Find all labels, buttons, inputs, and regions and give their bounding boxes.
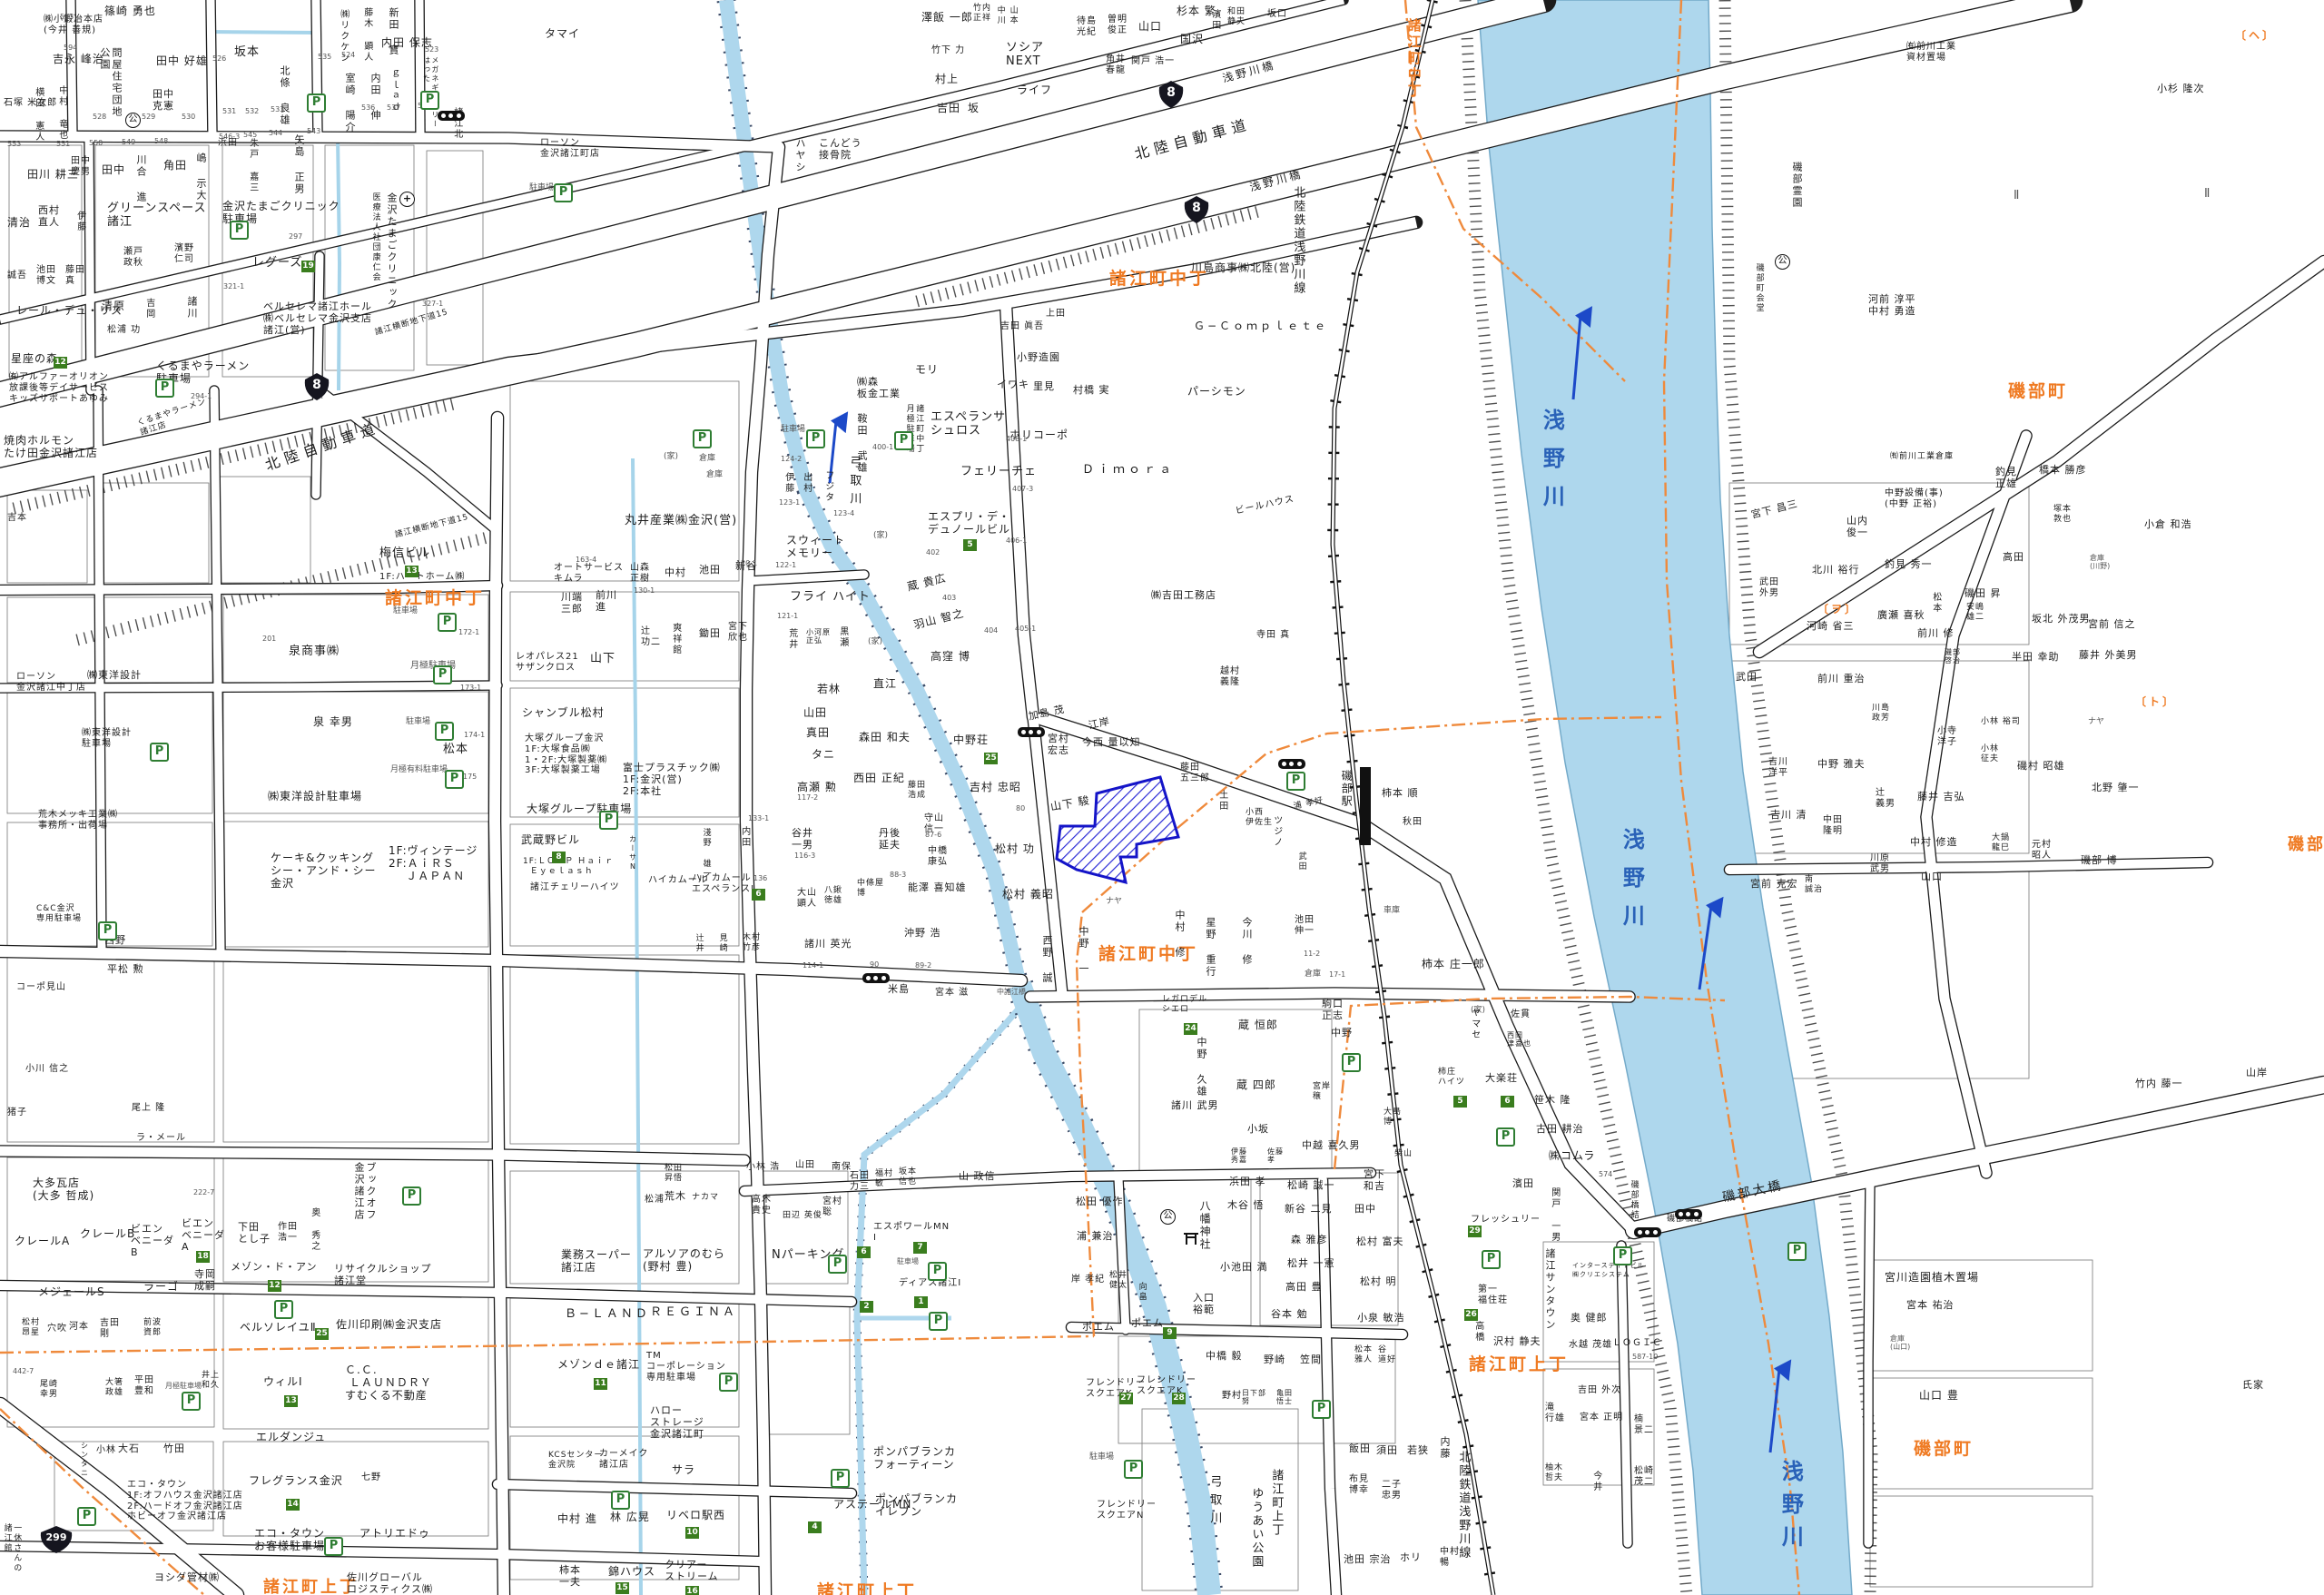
map-label: 星野 重行 [1204, 917, 1216, 978]
map-label: 誠吾 [7, 271, 27, 281]
map-label: フジタ [822, 470, 833, 503]
map-label: 大多瓦店 (大多 哲成) [33, 1177, 94, 1202]
map-label: 飯田 [1349, 1443, 1371, 1455]
map-label: 高木 貴史 [752, 1195, 772, 1216]
map-label: 浦 兼治 [1077, 1231, 1114, 1243]
map-label: 西岡 津喜也 [1507, 1031, 1531, 1049]
map-label: くるまやラーメン 諸江店 [136, 397, 211, 438]
parcel-number: 222-7 [193, 1188, 214, 1196]
map-label: 浅野川橋 [1221, 58, 1277, 84]
map-label: 国沢 [1180, 33, 1204, 45]
parking-icon: P [1482, 1250, 1501, 1269]
map-label: 伊藤 [783, 472, 793, 494]
map-label: 今川 修 [1240, 917, 1252, 966]
parking-icon: P [274, 1300, 293, 1319]
parcel-number: 403 [942, 594, 956, 602]
map-label: 大楽荘 [1485, 1073, 1518, 1085]
map-label: 富士プラスチック㈱ 1F:金沢(営) 2F:本社 [623, 763, 721, 798]
parcel-number: 407-3 [1012, 485, 1033, 493]
map-label: ビエン ベニーダ B [131, 1224, 174, 1259]
parking-icon: P [1312, 1400, 1331, 1419]
map-label: フェリーチェ [960, 465, 1037, 478]
parcel-number: 524 [341, 51, 355, 59]
map-label: Ⅱ [2014, 189, 2019, 202]
map-label: ライフ [1017, 84, 1052, 96]
map-label: 第一 福住荘 [1478, 1285, 1508, 1306]
map-label: 北陸鉄道浅野川線 [1291, 186, 1305, 295]
map-label: ㈱東洋設計 駐車場 [82, 728, 132, 750]
map-label: 秋田 [1403, 817, 1423, 828]
map-label: 橋本 勝彦 [2039, 465, 2087, 477]
building-number-badge: 28 [1172, 1393, 1186, 1404]
map-label: 今井 [1590, 1471, 1601, 1492]
parking-icon: P [929, 1312, 948, 1331]
map-label: 弓取川 [847, 456, 861, 510]
parking-icon: P [420, 91, 439, 110]
building-number-badge: 13 [405, 566, 419, 577]
parcel-number: 535 [318, 53, 331, 61]
map-label: 問屋住宅団地 公園 [98, 47, 122, 118]
map-label: 小川 信之 [25, 1064, 69, 1075]
map-label: C&C金沢 専用駐車場 [36, 904, 82, 923]
map-label: 下田 とし子 [238, 1222, 271, 1245]
map-label: 尾上 隆 [132, 1103, 165, 1114]
map-label: 月極有料駐車場 [390, 765, 448, 775]
map-label: 中野 久雄 [1195, 1037, 1206, 1098]
map-label: 磯部 博 [2081, 855, 2118, 867]
map-label: 吉川 洋平 [1768, 757, 1788, 779]
parking-icon: P [1787, 1242, 1807, 1261]
map-label: Ｃ.Ｃ. ＬＡＵＮＤＲＹ すむくる不動産 [345, 1364, 432, 1402]
map-label: 竹田 [163, 1443, 185, 1455]
map-label: リサイクルショップ 諸江堂 [334, 1264, 431, 1287]
map-label: 浦 孝好 [1293, 796, 1324, 812]
map-label: 磯部橋詰 [1629, 1180, 1639, 1220]
map-label: レオパレス21 サザンクロス [516, 652, 579, 674]
parking-icon: P [155, 379, 174, 398]
parcel-number: 172-1 [458, 628, 479, 636]
parcel-number: 526 [212, 54, 226, 63]
map-label: ラーゴ [143, 1280, 179, 1293]
map-label: 二子 忠男 [1382, 1480, 1402, 1501]
map-label: ポエム [1131, 1318, 1164, 1330]
map-label: 谷井 一男 [792, 828, 813, 852]
map-label: 新田 寶 [387, 7, 399, 56]
map-label: 滝 行雄 [1545, 1403, 1565, 1424]
map-label: ブックオフ 金沢諸江店 [352, 1162, 376, 1221]
map-label: 岸 孝紀 [1071, 1275, 1105, 1285]
map-label: 野崎 [1264, 1354, 1285, 1366]
map-label: タマイ [545, 27, 580, 40]
map-label: 武蔵野ビル [521, 833, 580, 846]
map-label: 寺岡 成嗣 [194, 1269, 216, 1293]
building-number-badge: 5 [963, 539, 977, 551]
map-label: 弓取川 [1207, 1475, 1221, 1530]
traffic-signal-icon [1278, 759, 1305, 769]
hospital-icon: + [399, 192, 415, 207]
map-label: 中諸江橋 [997, 988, 1026, 996]
map-label: ビールハウス [1235, 494, 1295, 517]
parcel-number: 114-1 [803, 961, 823, 970]
map-label: 諸江町中丁 [1109, 269, 1209, 289]
map-label: 爽祥館 [670, 623, 681, 655]
map-overlay: 篠崎 勇也㈱小鍛冶本店 (今井 善規)吉永 峰治石塚 米次郎横田 憲人中村 竜也… [0, 0, 2324, 1595]
map-label: 塚本 敦也 [2053, 505, 2072, 524]
map-label: 佐藤 孝 [1267, 1147, 1284, 1165]
map-label: 能澤 喜知雄 [908, 882, 967, 894]
map-label: 村橋 実 [1073, 385, 1110, 397]
map-label: 黒瀬 [837, 626, 848, 648]
map-label: 坂本 信也 [899, 1167, 917, 1186]
parking-icon: P [435, 722, 454, 741]
map-label: 中村 修 [1173, 910, 1185, 959]
map-label: エコ・タウン お客様駐車場 [254, 1527, 325, 1552]
map-label: 倉庫 [1305, 970, 1321, 980]
map-label: 田中 [102, 163, 125, 176]
map-label: 猪子 [7, 1108, 27, 1118]
map-label: 松本 [443, 743, 468, 756]
parcel-number: 122-1 [775, 561, 796, 569]
map-label: 高田 豊 [1285, 1282, 1323, 1294]
map-label: 松浦 功 [107, 325, 141, 336]
parcel-number: 297 [289, 232, 302, 241]
parcel-number: 89-2 [915, 961, 931, 970]
map-label: 待島 光紀 [1077, 16, 1097, 38]
map-label: 澤飯 一郎 [921, 11, 973, 24]
parcel-number: 546-3 [219, 133, 240, 141]
map-label: 北陸鉄道浅野川線 [1456, 1451, 1470, 1560]
map-label: 中條屋 博 [857, 879, 884, 898]
map-label: 前川 修 [1917, 628, 1955, 640]
map-label: 宮前 信之 [2088, 619, 2136, 631]
map-label: 諸江町中丁 [385, 588, 485, 608]
map-label: 松本 [1930, 592, 1941, 614]
map-label: 宮岸 穣 [1313, 1082, 1331, 1101]
map-label: 篠崎 勇也 [104, 5, 156, 17]
map-label: エコ・タウン 1F:オフハウス金沢諸江店 2F:ハードオフ金沢諸江店 ホビーオフ… [127, 1480, 243, 1522]
map-label: 小杉 隆次 [2157, 84, 2205, 95]
map-label: 川合 進 [134, 154, 146, 203]
map-label: 山岸 [2246, 1068, 2268, 1079]
map-label: 蔵 恒郎 [1238, 1019, 1278, 1031]
map-label: ラ・メール [136, 1133, 186, 1144]
parcel-number: 175 [463, 773, 477, 781]
map-label: 山口 [1921, 871, 1943, 883]
map-label: 荒木メッキ工業㈱ 事務所・出荷場 [38, 810, 118, 832]
map-label: ヨシダ管材㈱ [154, 1572, 220, 1584]
map-label: 伊藤 秀嘉 [1231, 1147, 1247, 1165]
map-label: 山口 豊 [1919, 1389, 1959, 1402]
parcel-number: 536 [361, 103, 375, 112]
map-label: シャンブル松村 [522, 706, 605, 719]
map-label: 小野造園 [1017, 352, 1060, 364]
map-label: 宮本 正明 [1580, 1413, 1623, 1423]
map-label: 月極駐車場 [165, 1382, 202, 1390]
map-label: 吉田 外次 [1578, 1385, 1621, 1396]
parcel-number: 408-1 [1006, 435, 1027, 443]
map-label: 石田 力三 [850, 1171, 870, 1193]
map-label: メゾンｄｅ諸江 [557, 1358, 640, 1371]
map-label: ホリ [1400, 1552, 1422, 1564]
map-label: 山 政信 [959, 1171, 996, 1183]
map-label: 山本 [1008, 5, 1018, 25]
map-label: 見崎 [717, 933, 727, 953]
map-label: 瀬戸 政秋 [123, 247, 143, 269]
map-label: 小河原 正弘 [806, 628, 831, 645]
map-label: 中村 修造 [1910, 837, 1958, 849]
map-label: カーメイク 諸江店 [599, 1449, 648, 1471]
parcel-number: 294-1 [191, 392, 212, 400]
map-label: 七野 [361, 1472, 381, 1483]
parcel-number: 531 [222, 107, 236, 115]
parcel-number: 80 [1016, 804, 1025, 812]
map-label: ツジノ [1271, 815, 1282, 848]
map-label: ローソン 金沢諸江中丁店 [16, 672, 86, 694]
building-number-badge: 5 [1453, 1096, 1467, 1108]
map-label: 丹後 延夫 [879, 828, 901, 852]
map-label: Ⅱ [2204, 187, 2210, 201]
map-label: ㈱森 板金工業 [857, 377, 901, 400]
map-label: フレンドリー スクエアN [1097, 1500, 1157, 1521]
map-label: 田中 [1354, 1204, 1376, 1216]
building-number-badge: 19 [301, 261, 315, 272]
parcel-number: 406-1 [1006, 537, 1027, 545]
map-label: アトリエドゥ [359, 1527, 430, 1540]
map-label: 羽山 智之 [912, 606, 966, 631]
map-label: 磯部町 [2008, 381, 2068, 401]
map-label: 駐車場 [781, 425, 805, 435]
map-label: 北陸自動車道 [1133, 116, 1253, 163]
map-label: 河本 [69, 1322, 89, 1333]
map-label: 柿本 順 [1382, 788, 1419, 800]
map-label: 辻井 [694, 933, 704, 953]
map-label: 吉岡 [143, 298, 154, 320]
map-label: 日下部 努 [1242, 1389, 1266, 1406]
map-label: タニ [812, 748, 835, 761]
map-label: モリ [915, 363, 939, 376]
map-label: 藤田 浩成 [908, 781, 926, 800]
map-label: 業務スーパー 諸江店 [561, 1248, 632, 1274]
traffic-signal-icon [1634, 1227, 1661, 1237]
map-label: 今西 量以知 [1082, 737, 1141, 749]
map-label: 河前 淳平 中村 勇造 [1868, 294, 1916, 318]
parking-icon: P [324, 1537, 343, 1556]
map-label: 山田 [803, 706, 827, 719]
map-label: こんどう 接骨院 [819, 138, 862, 162]
map-label: 焼肉ホルモン たけ田金沢諸江店 [4, 434, 98, 459]
map-label: コーポ見山 [16, 982, 66, 993]
building-number-badge: 11 [594, 1378, 607, 1390]
map-label: 奥 健郎 [1571, 1313, 1608, 1324]
map-label: Ｄｉｍｏｒａ [1082, 463, 1175, 477]
map-label: 松崎 茂二 [1634, 1466, 1654, 1488]
parking-icon: P [828, 1255, 847, 1274]
map-label: 浜田 孝 [1229, 1177, 1266, 1188]
map-label: 谷 道好 [1378, 1345, 1396, 1364]
map-label: 加島 茂 [1028, 704, 1066, 724]
isobe-station [1360, 767, 1371, 845]
building-number-badge: 6 [1501, 1096, 1514, 1108]
map-label: 川端 三郎 [561, 592, 583, 615]
map-label: メジェールS [38, 1285, 105, 1298]
map-label: 車庫 [1384, 906, 1400, 916]
map-label: エスポワールMN Ⅰ [873, 1222, 950, 1244]
map-label: 中野 [1331, 1028, 1353, 1039]
map-label: Ｂ−ＬＡＮＤ [565, 1307, 650, 1321]
parking-icon: P [806, 429, 825, 448]
map-label: 磯田 昇 [1965, 588, 2002, 600]
map-label: 松村 明 [1360, 1276, 1397, 1288]
building-number-badge: 27 [1119, 1393, 1133, 1404]
map-label: 関戸 一男 [1549, 1187, 1560, 1243]
parcel-number: 551 [56, 140, 70, 148]
map-label: 小坂 [1247, 1124, 1269, 1136]
map-label: ビエン ベニーダ A [182, 1218, 225, 1254]
map-label: ㈱東洋設計 [87, 670, 142, 682]
map-label: グリーンスペース 諸江 [107, 202, 207, 230]
map-label: スウィート メモリー [786, 534, 845, 559]
map-label: ナヤ [2088, 717, 2104, 727]
parcel-number: 587-10 [1632, 1353, 1658, 1361]
map-label: 伊藤 [74, 211, 85, 232]
map-label: 向畠 [1137, 1282, 1147, 1302]
map-label: ポエム [1082, 1322, 1115, 1334]
map-label: 駐車場 [406, 717, 430, 727]
map-label: フレンドリー スクエアK [1137, 1375, 1196, 1397]
parcel-number: 201 [262, 635, 276, 643]
map-label: 坂北 外茂男 [2032, 614, 2091, 625]
map-label: 浅野川 [1777, 1460, 1803, 1558]
map-label: ＲＥＧＩＮＡ [650, 1305, 737, 1319]
map-label: 大石 [118, 1443, 140, 1455]
parcel-number: 442-7 [13, 1367, 34, 1375]
map-label: 磯村 昭雄 [2017, 761, 2065, 773]
map-label: 武田 [1296, 852, 1306, 871]
map-label: 浅野川 [1619, 828, 1644, 942]
parking-icon: P [611, 1491, 630, 1510]
traffic-signal-icon [1018, 727, 1045, 737]
map-label: 奥 秀之 [309, 1207, 320, 1252]
parking-icon: P [693, 429, 712, 448]
map-label: 平松 勲 [107, 964, 144, 976]
map-label: 蔵 貴広 [906, 571, 948, 593]
parking-icon: P [894, 431, 913, 450]
map-label: 諸江サンタウン [1543, 1248, 1555, 1331]
map-label: 駐車場 [529, 183, 554, 193]
parcel-number: 133-1 [748, 814, 769, 822]
map-label: 吉田 [937, 102, 960, 114]
map-label: 小泉 敏浩 [1357, 1313, 1405, 1324]
map-label: 柿庄 ハイツ [1438, 1068, 1465, 1087]
parcel-number: 405-1 [1015, 625, 1036, 633]
route-shield: 8 [1182, 194, 1211, 225]
parcel-number: 593 [60, 13, 74, 21]
map-label: ㈱コムラ [1549, 1149, 1595, 1162]
map-label: 北川 裕行 [1812, 565, 1860, 576]
parcel-number: 321-1 [223, 282, 244, 290]
map-label: 布見 博幸 [1349, 1474, 1369, 1496]
parcel-number: 400-1 [872, 443, 893, 451]
map-label: 池田 宗治 [1344, 1554, 1392, 1566]
map-label: 清治 [7, 216, 31, 229]
parking-icon: P [1286, 772, 1305, 791]
map-label: 丸井産業㈱金沢(営) [625, 514, 737, 527]
map-label: 大島 博 [1384, 1108, 1402, 1127]
parcel-number: 537 [387, 103, 400, 112]
map-label: 安嶋 雄二 [1966, 603, 1984, 622]
building-number-badge: 1 [914, 1296, 928, 1308]
map-label: 松浦 [645, 1195, 665, 1206]
map-label: 駐車場 [1089, 1452, 1114, 1462]
map-label: 荒井 [786, 628, 797, 650]
map-label: 高窪 博 [931, 650, 970, 663]
map-label: 米島 [888, 984, 910, 996]
building-number-badge: 6 [752, 889, 765, 901]
map-label: 横田 憲人 [33, 87, 44, 143]
map-label: 諸江町上丁 [263, 1578, 359, 1595]
map-label: 〔ヘ〕 [2235, 29, 2276, 42]
map-label: 浅野川 [1539, 409, 1564, 523]
map-label: 武田 外男 [1759, 577, 1779, 599]
map-label: 古田 耕治 [1536, 1124, 1584, 1136]
map-label: 新谷 二見 [1285, 1204, 1333, 1216]
map-label: メゾン・ド・アン [231, 1262, 318, 1274]
map-label: 吉田 剛 [100, 1318, 120, 1340]
building-number-badge: 25 [315, 1328, 329, 1340]
map-label: 須田 [1376, 1445, 1398, 1457]
map-label: 角田 [163, 159, 187, 172]
map-label: ハヤシ [793, 138, 805, 173]
map-label: フライ ハイト [790, 590, 871, 604]
map-label: 吉本 [7, 513, 27, 524]
map-label: 朱戸 嘉三 [247, 138, 258, 193]
map-label: レール・デュ・リス [16, 304, 123, 317]
parcel-number: 549 [122, 138, 135, 146]
map-label: 南 誠治 [1805, 875, 1823, 894]
map-label: 若林 [817, 683, 841, 695]
building-number-badge: 14 [286, 1499, 300, 1511]
map-label: 金沢たまごクリニック [385, 192, 397, 310]
map-label: 楠 景二 [1634, 1414, 1654, 1436]
building-number-badge: 12 [268, 1280, 281, 1292]
map-label: 水越 茂雄 [1569, 1340, 1612, 1351]
map-label: 倉庫 [699, 454, 715, 464]
map-label: 磯部駅 [1340, 770, 1353, 808]
parcel-number: 136 [753, 874, 767, 882]
map-label: 駐車場 [897, 1257, 919, 1265]
map-label: 濱田 [1209, 9, 1220, 31]
map-label: 坂本 [234, 45, 260, 59]
map-label: 宮本 滋 [935, 988, 969, 999]
building-number-badge: 9 [1163, 1327, 1177, 1339]
map-label: (家) [868, 637, 882, 647]
map-label: 中野設備(事) (中野 正裕) [1885, 488, 1944, 510]
map-label: ㈲アルファーオリオン 放課後等デイサービス キッズサポートあゆみ [9, 372, 109, 404]
map-label: 松田 優作 [1076, 1196, 1124, 1208]
map-label: 中村 竜也 [56, 85, 67, 141]
map-label: 若狭 [1407, 1445, 1429, 1457]
parking-icon: P [554, 183, 573, 202]
map-label: 笠間 [1300, 1354, 1322, 1366]
map-label: ヤマセ [1469, 1008, 1480, 1040]
map-label: 笹木 隆 [1534, 1095, 1571, 1107]
map-label: 辻 義男 [1876, 788, 1896, 810]
parcel-number: 174-1 [464, 731, 485, 739]
parcel-number: 550 [89, 139, 103, 147]
map-label: 石塚 米次郎 [4, 98, 57, 109]
parking-icon: P [150, 743, 169, 762]
map-label: 木谷 悟 [1227, 1200, 1265, 1212]
